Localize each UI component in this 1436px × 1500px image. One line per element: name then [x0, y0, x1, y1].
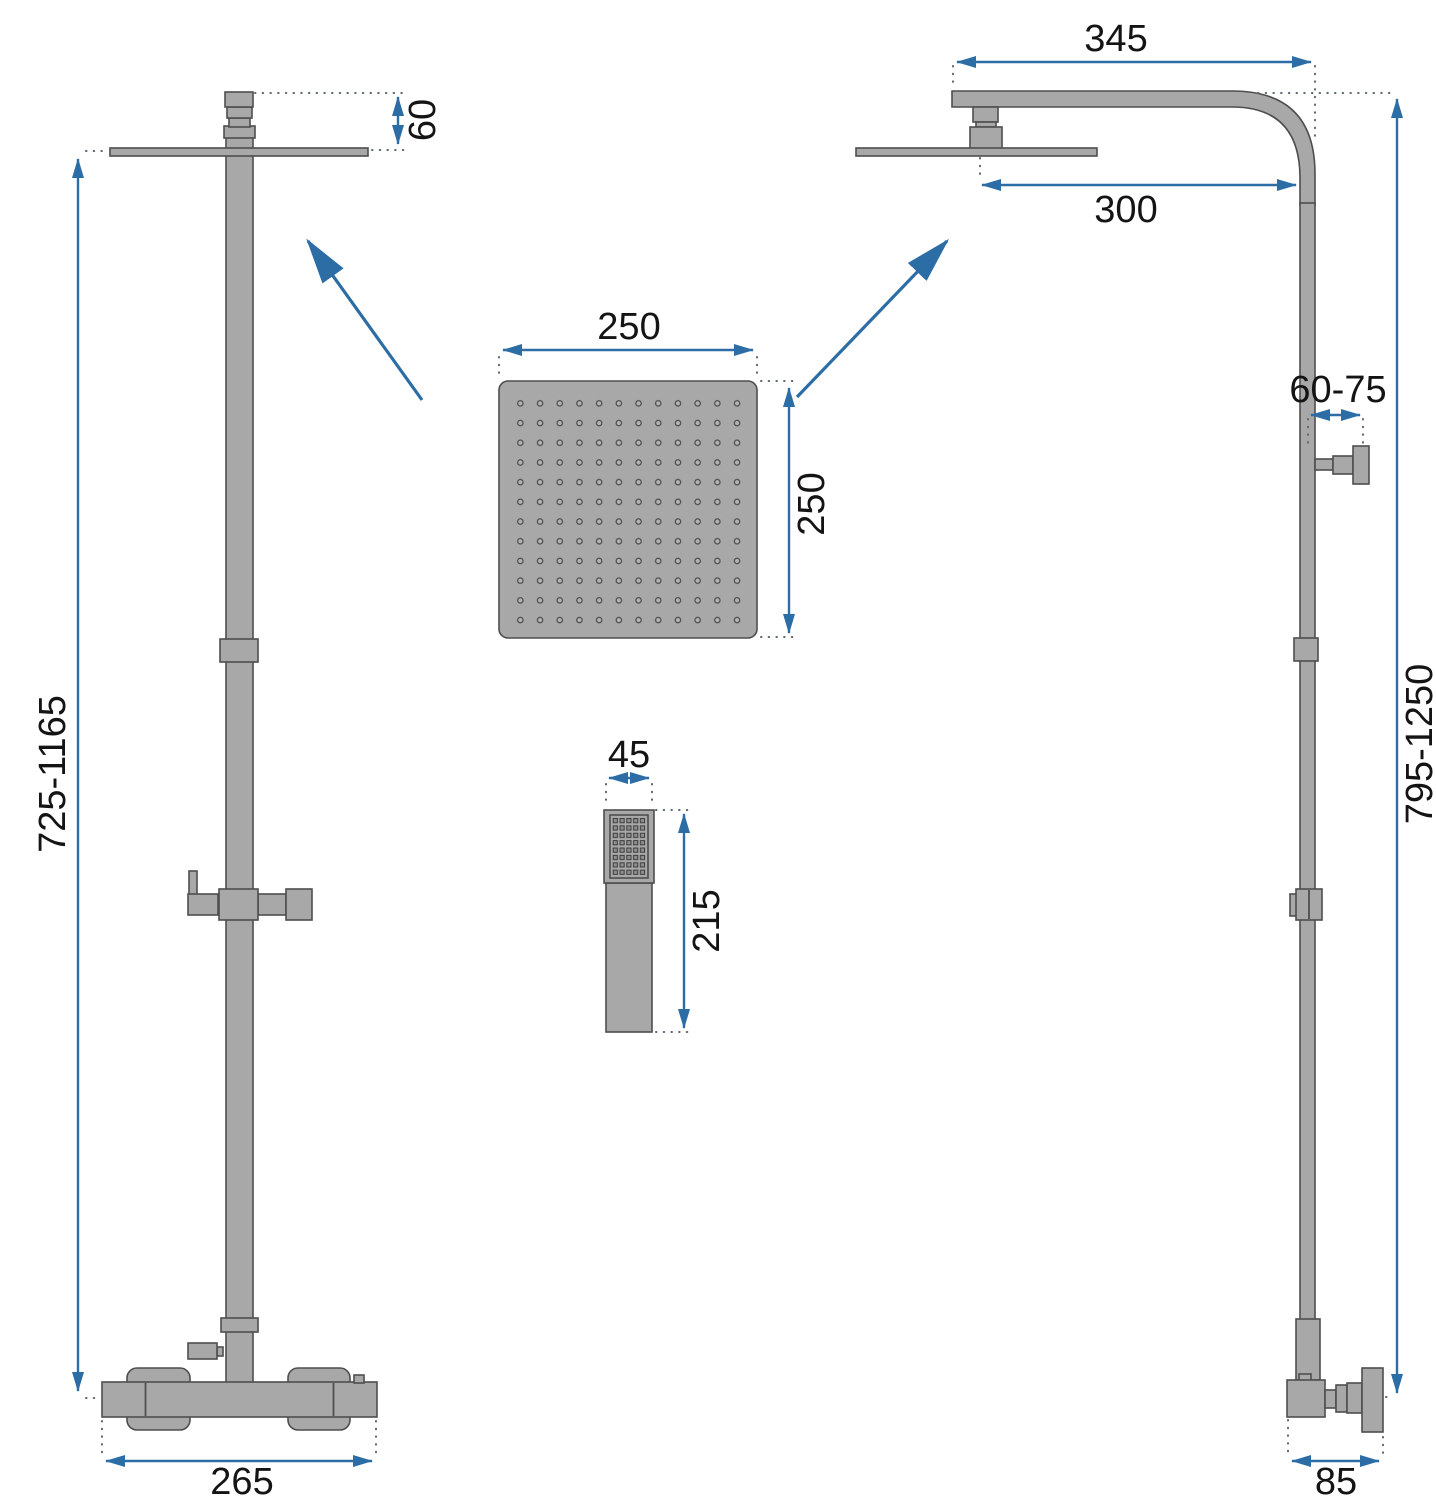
rain-head-nozzles — [511, 394, 747, 630]
side-wall-connection-plate — [1362, 1368, 1383, 1432]
dim-label-side-base-depth: 85 — [1315, 1463, 1357, 1500]
hand-shower-detail — [604, 810, 654, 1032]
side-view-parts — [856, 91, 1383, 1432]
dim-label-head-width: 250 — [597, 308, 660, 346]
front-column — [226, 137, 253, 1383]
hand-shower-handle — [606, 883, 652, 1032]
side-head-connector — [973, 107, 998, 122]
side-pipe-coupling — [1294, 638, 1318, 661]
dim-label-side-height-range: 795-1250 — [1401, 664, 1436, 825]
front-view-parts — [102, 92, 377, 1430]
dim-label-front-base-width: 265 — [210, 1463, 273, 1500]
dim-label-side-wall-offset: 60-75 — [1289, 371, 1386, 409]
front-hose-outlet — [188, 1343, 217, 1359]
front-diverter-lever — [189, 871, 197, 895]
side-mixer-riser — [1296, 1319, 1320, 1380]
side-mixer-body — [1287, 1380, 1325, 1417]
dim-label-hand-length: 215 — [688, 889, 726, 952]
front-slider-knob — [286, 889, 312, 920]
front-rain-head-plate — [110, 148, 368, 156]
dim-label-front-head-offset: 60 — [404, 99, 442, 141]
side-wall-bracket-plate — [1353, 446, 1369, 484]
front-column-collar — [221, 1318, 258, 1332]
front-head-connector — [224, 126, 255, 138]
front-slider-block — [219, 889, 258, 920]
drawing-linework — [0, 0, 1436, 1500]
rain-head-detail — [499, 381, 757, 638]
dim-label-side-head-reach: 300 — [1094, 191, 1157, 229]
pointer-to-front-view — [308, 241, 422, 400]
technical-drawing-canvas: 60 725-1165 265 345 300 60-75 795-1250 8… — [0, 0, 1436, 1500]
dim-label-front-height-range: 725-1165 — [34, 695, 72, 853]
front-column-coupling — [220, 639, 258, 662]
pointer-to-side-view — [797, 241, 947, 397]
front-mixer-body — [102, 1382, 377, 1417]
dim-label-side-arm-length: 345 — [1084, 20, 1147, 58]
side-rain-head-plate — [856, 148, 1097, 156]
dim-label-hand-width: 45 — [608, 736, 650, 774]
hand-shower-nozzles — [612, 817, 646, 876]
side-wall-bracket-arm — [1315, 459, 1333, 470]
dimension-lines — [78, 62, 1397, 1461]
extension-lines — [86, 66, 1393, 1455]
dim-label-head-depth: 250 — [793, 472, 831, 535]
